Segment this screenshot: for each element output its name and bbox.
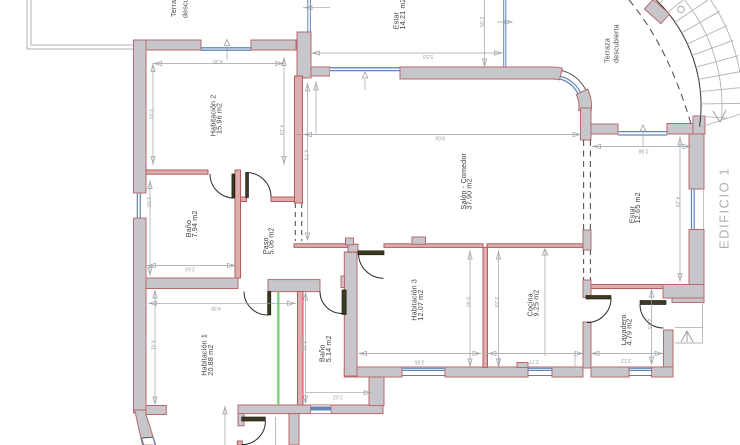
svg-text:3.55: 3.55 (414, 359, 424, 365)
svg-text:5.14 m2: 5.14 m2 (324, 335, 333, 362)
svg-text:4.79 m2: 4.79 m2 (625, 318, 634, 345)
svg-text:Terraza: Terraza (169, 0, 178, 17)
svg-text:8.06: 8.06 (435, 135, 445, 141)
svg-text:2.12: 2.12 (621, 357, 631, 363)
svg-text:2.98: 2.98 (638, 148, 648, 154)
svg-text:3.02: 3.02 (145, 197, 151, 208)
svg-text:descubierta: descubierta (181, 0, 190, 18)
svg-text:EDIFICIO 1: EDIFICIO 1 (717, 167, 732, 249)
svg-text:3.31: 3.31 (150, 340, 156, 351)
svg-text:2.55: 2.55 (478, 17, 484, 28)
svg-text:20.88 m2: 20.88 m2 (206, 345, 215, 376)
svg-text:2.77: 2.77 (529, 358, 539, 364)
svg-text:14.21 m2: 14.21 m2 (398, 0, 407, 30)
svg-text:4.29: 4.29 (674, 197, 680, 208)
svg-text:descubierta: descubierta (611, 24, 620, 63)
svg-text:3.29: 3.29 (493, 297, 499, 308)
svg-text:4.36: 4.36 (211, 305, 221, 311)
svg-text:5.06 m2: 5.06 m2 (267, 227, 276, 254)
svg-text:2.63: 2.63 (185, 266, 195, 272)
svg-text:15.96 m2: 15.96 m2 (215, 103, 224, 134)
svg-text:4.73: 4.73 (303, 150, 309, 161)
svg-text:4.19: 4.19 (278, 125, 284, 136)
svg-text:12.65 m2: 12.65 m2 (633, 192, 642, 223)
svg-text:3.40: 3.40 (464, 297, 470, 308)
svg-text:7.94 m2: 7.94 m2 (190, 210, 199, 237)
svg-text:37.90 m2: 37.90 m2 (465, 178, 474, 209)
svg-text:3.43: 3.43 (147, 109, 153, 120)
svg-text:3.31: 3.31 (300, 341, 306, 352)
svg-text:12.07 m2: 12.07 m2 (416, 290, 425, 321)
svg-text:4.30: 4.30 (213, 58, 223, 64)
svg-text:5.53: 5.53 (423, 53, 433, 59)
svg-text:2.26: 2.26 (646, 319, 652, 330)
svg-text:2.02: 2.02 (333, 394, 343, 400)
svg-text:9.25 m2: 9.25 m2 (532, 289, 541, 316)
